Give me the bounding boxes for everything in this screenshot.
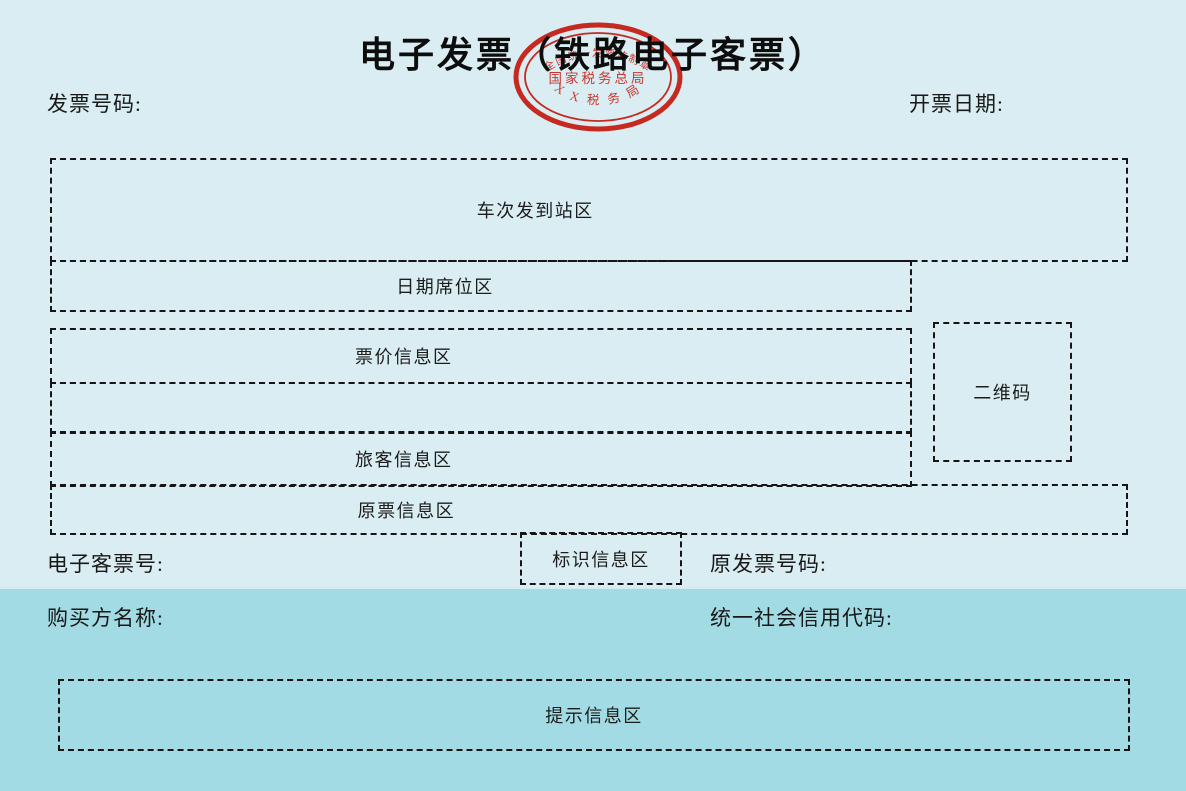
zone-date-seat: 日期席位区 [50,260,912,312]
zone-original-ticket: 原票信息区 [50,484,1128,535]
zone-notice: 提示信息区 [58,679,1130,751]
zone-notice-label: 提示信息区 [545,702,643,728]
zone-passenger-info-label: 旅客信息区 [355,446,453,472]
zone-train-station-label: 车次发到站区 [477,197,594,223]
invoice-number-label: 发票号码: [47,88,142,118]
buyer-name-label: 购买方名称: [47,602,164,632]
zone-identification: 标识信息区 [520,532,682,585]
original-invoice-number-label: 原发票号码: [710,548,827,578]
zone-qr-code-label: 二维码 [973,379,1032,405]
zone-qr-code: 二维码 [933,322,1072,462]
invoice-page: 全国统一发票监制章 国家税务总局 X X 税 务 局 电子发票（铁路电子客票） … [0,0,1186,791]
zone-fare-info-label: 票价信息区 [355,343,453,369]
credit-code-label: 统一社会信用代码: [710,602,893,632]
zone-identification-label: 标识信息区 [552,546,650,572]
zone-unlabeled [50,382,912,434]
zone-passenger-info: 旅客信息区 [50,431,912,487]
zone-date-seat-label: 日期席位区 [396,273,494,299]
zone-fare-info: 票价信息区 [50,328,912,384]
zone-original-ticket-label: 原票信息区 [358,497,456,523]
zone-train-station: 车次发到站区 [50,158,1128,262]
invoice-date-label: 开票日期: [909,88,1004,118]
eticket-number-label: 电子客票号: [47,548,164,578]
page-title: 电子发票（铁路电子客票） [0,26,1186,78]
